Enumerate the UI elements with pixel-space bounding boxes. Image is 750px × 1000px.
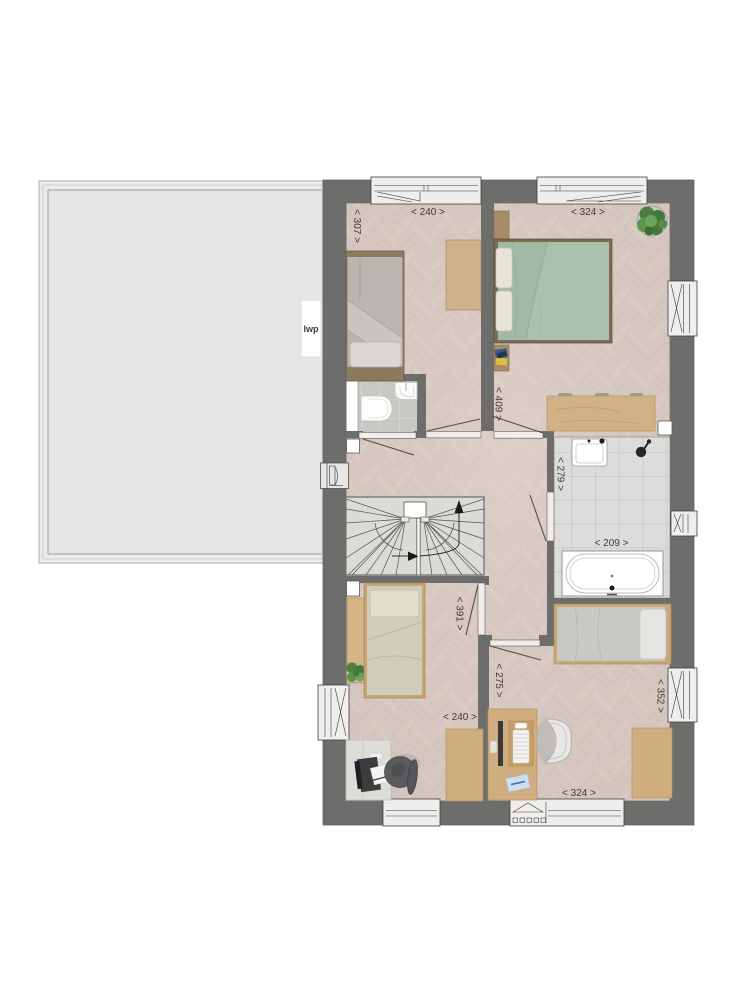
svg-text:< 275 >: < 275 > <box>493 664 504 698</box>
svg-text:< 307 >: < 307 > <box>351 209 362 243</box>
svg-text:< 391 >: < 391 > <box>453 597 464 631</box>
svg-text:< 279 >: < 279 > <box>554 457 565 491</box>
svg-text:< 209 >: < 209 > <box>595 538 629 549</box>
svg-text:< 352 >: < 352 > <box>655 679 666 713</box>
svg-text:< 240 >: < 240 > <box>411 207 445 218</box>
svg-text:< 240 >: < 240 > <box>443 712 477 723</box>
svg-text:< 324 >: < 324 > <box>571 207 605 218</box>
svg-text:< 409 >: < 409 > <box>492 387 503 421</box>
svg-text:< 324 >: < 324 > <box>562 788 596 799</box>
svg-text:lwp: lwp <box>304 324 320 334</box>
